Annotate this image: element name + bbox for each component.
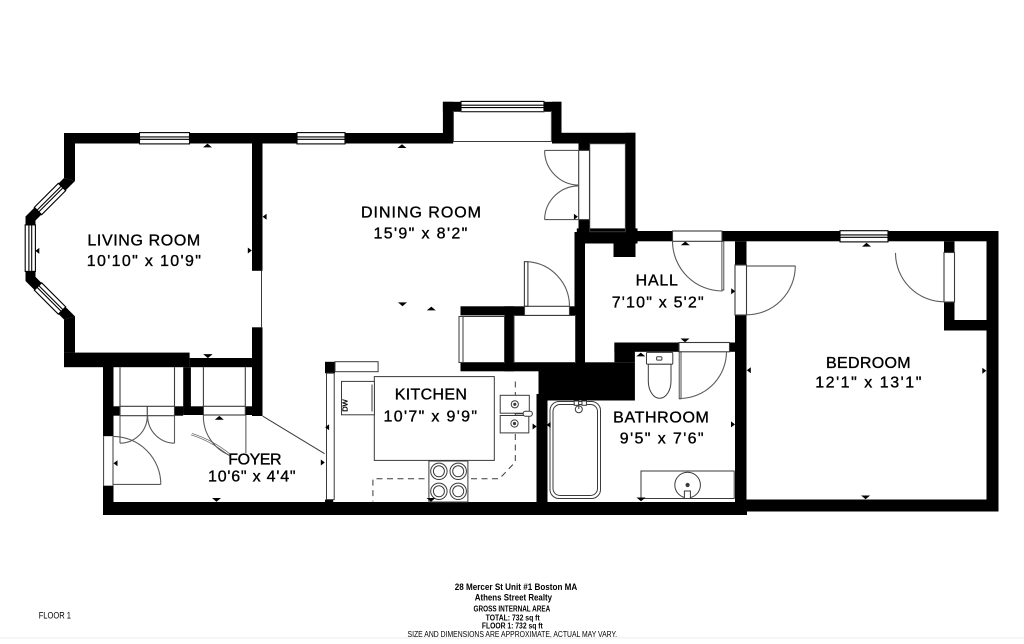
svg-text:10'6" x 4'4": 10'6" x 4'4": [208, 469, 296, 486]
svg-text:DINING ROOM: DINING ROOM: [361, 205, 481, 222]
svg-text:FLOOR 1: FLOOR 1: [39, 610, 71, 620]
svg-text:FOYER: FOYER: [228, 452, 281, 469]
svg-text:BEDROOM: BEDROOM: [826, 355, 911, 372]
svg-text:9'5" x 7'6": 9'5" x 7'6": [620, 431, 704, 448]
svg-text:12'1" x 13'1": 12'1" x 13'1": [815, 374, 921, 391]
svg-text:KITCHEN: KITCHEN: [395, 386, 467, 403]
svg-text:LIVING ROOM: LIVING ROOM: [87, 233, 200, 250]
svg-text:28 Mercer St Unit #1 Boston MA: 28 Mercer St Unit #1 Boston MA: [455, 582, 578, 592]
svg-text:BATHROOM: BATHROOM: [613, 410, 709, 427]
svg-text:HALL: HALL: [636, 272, 678, 289]
svg-text:Athens Street Realty: Athens Street Realty: [475, 592, 552, 602]
svg-text:DW: DW: [341, 398, 350, 411]
svg-text:GROSS INTERNAL AREA: GROSS INTERNAL AREA: [474, 604, 551, 613]
